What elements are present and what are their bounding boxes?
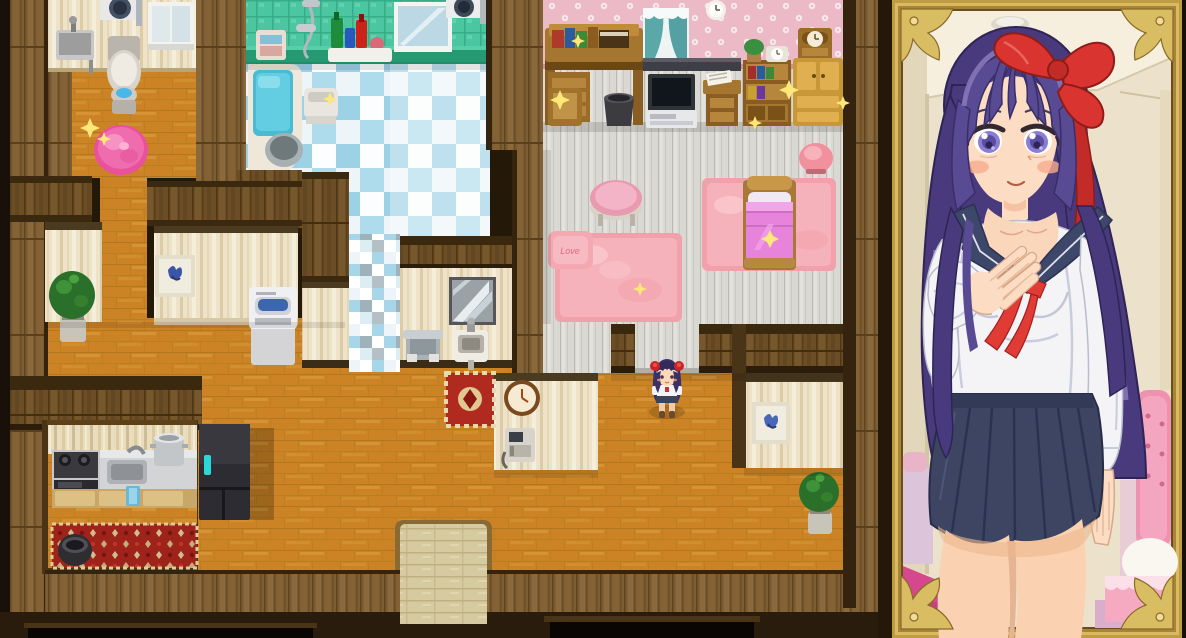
svg-text:Love: Love xyxy=(560,246,580,256)
